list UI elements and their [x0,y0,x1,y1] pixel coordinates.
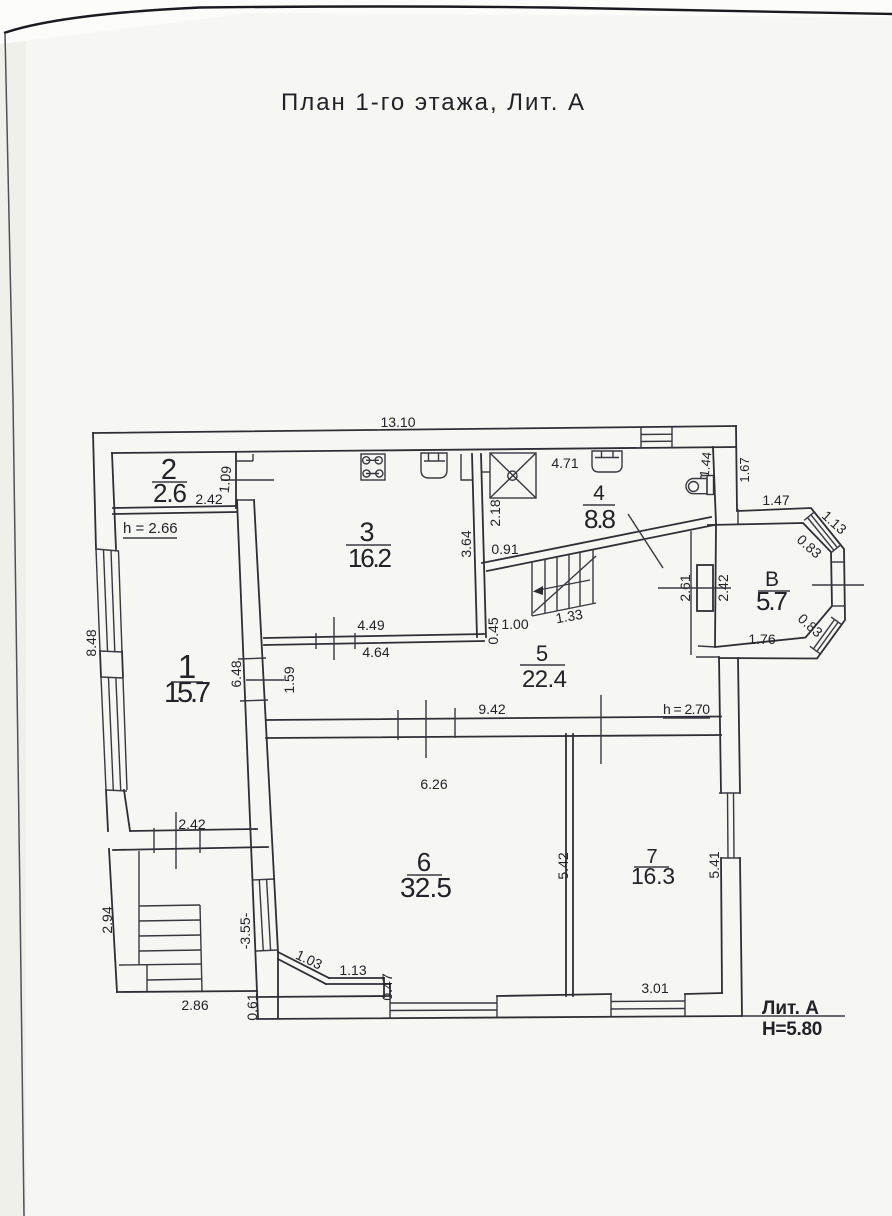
svg-text:5.7: 5.7 [756,586,788,616]
svg-text:-3.55-: -3.55- [237,912,253,949]
svg-text:5.41: 5.41 [706,851,722,878]
svg-text:2.94: 2.94 [99,906,115,933]
svg-text:16.3: 16.3 [631,863,675,889]
svg-text:1.67: 1.67 [737,457,752,482]
svg-text:H=5.80: H=5.80 [762,1019,822,1040]
svg-text:13.10: 13.10 [380,414,415,430]
svg-text:4: 4 [593,482,605,505]
svg-text:1.13: 1.13 [339,962,366,978]
svg-text:4.64: 4.64 [362,644,389,660]
svg-text:1.59: 1.59 [281,666,297,693]
svg-text:9.42: 9.42 [478,701,505,717]
svg-text:6.26: 6.26 [420,776,447,792]
svg-text:2.42: 2.42 [178,816,205,832]
svg-text:2.18: 2.18 [487,499,503,526]
svg-text:1.76: 1.76 [748,631,775,647]
svg-text:22.4: 22.4 [522,666,567,693]
svg-text:1.47: 1.47 [762,492,789,508]
svg-text:32.5: 32.5 [400,872,452,903]
svg-text:15.7: 15.7 [164,677,211,709]
svg-text:2.86: 2.86 [181,997,208,1013]
svg-text:8.48: 8.48 [83,629,99,656]
svg-text:2.42: 2.42 [715,574,731,601]
svg-text:1.09: 1.09 [216,465,235,494]
svg-text:h = 2.70: h = 2.70 [663,701,710,717]
svg-text:Лит. А: Лит. А [762,998,819,1019]
svg-text:5.42: 5.42 [555,852,571,879]
svg-text:1.44: 1.44 [697,451,715,478]
svg-text:5: 5 [536,641,548,666]
svg-text:1.00: 1.00 [501,616,528,632]
svg-text:0.45: 0.45 [485,617,501,644]
svg-text:8.8: 8.8 [584,504,616,534]
svg-text:0.91: 0.91 [491,541,518,557]
svg-text:h = 2.66: h = 2.66 [123,520,178,537]
svg-text:3.01: 3.01 [641,980,668,996]
svg-text:3.64: 3.64 [458,530,474,557]
svg-text:6.48: 6.48 [228,660,244,687]
svg-text:4.71: 4.71 [551,455,578,471]
svg-text:2.6: 2.6 [153,478,187,508]
svg-text:4.49: 4.49 [357,617,384,633]
svg-text:16.2: 16.2 [348,543,392,573]
